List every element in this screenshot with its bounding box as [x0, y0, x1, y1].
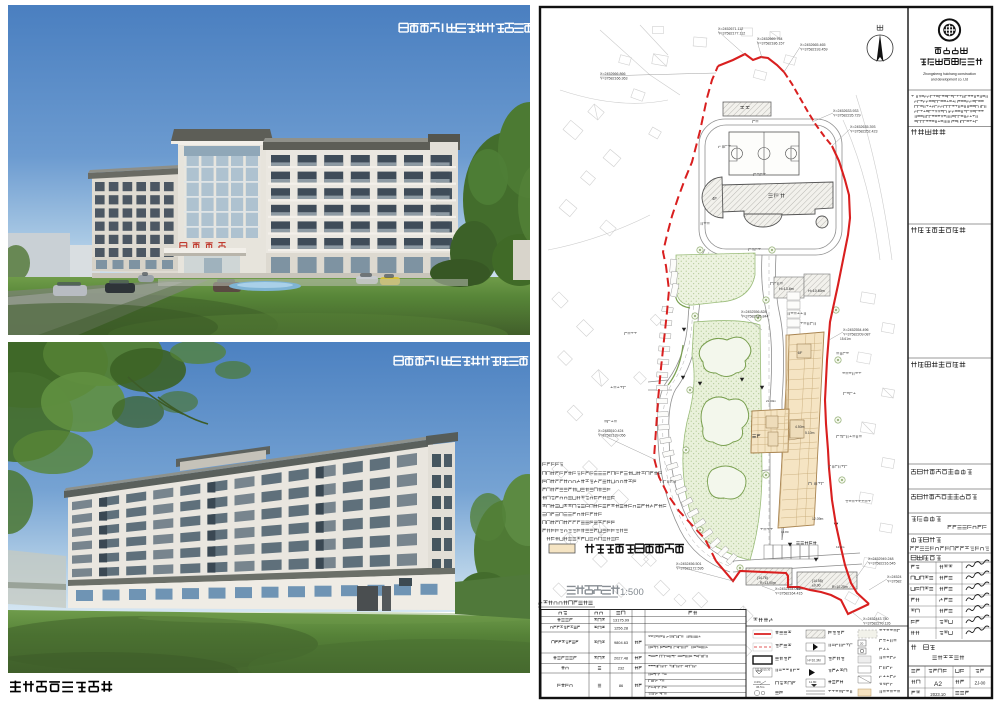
svg-text:X=2452665.465: X=2452665.465: [800, 43, 825, 47]
svg-text:X=2452443.750: X=2452443.750: [863, 617, 888, 621]
svg-text:H=10.60m: H=10.60m: [808, 289, 825, 293]
svg-text:X=2452554.496: X=2452554.496: [843, 328, 868, 332]
svg-text:Y=37582193.459: Y=37582193.459: [800, 48, 827, 52]
svg-text:13.80: 13.80: [781, 530, 789, 534]
svg-text:12.0m: 12.0m: [836, 545, 845, 549]
svg-text:X=2452635.393: X=2452635.393: [850, 125, 875, 129]
svg-text:and development co. Ltd: and development co. Ltd: [931, 78, 968, 82]
svg-text:15.61m: 15.61m: [840, 337, 851, 341]
svg-text:R=13.00m: R=13.00m: [760, 581, 776, 585]
svg-text:H=10.3M: H=10.3M: [808, 659, 821, 663]
svg-text:A2: A2: [934, 681, 942, 688]
svg-text:2027.48: 2027.48: [614, 656, 628, 661]
svg-text:6F: 6F: [798, 350, 803, 355]
svg-text:(14.55): (14.55): [812, 579, 823, 583]
svg-text:Y=37582166.363: Y=37582166.363: [600, 77, 627, 81]
svg-text:X=2452671.112: X=2452671.112: [718, 27, 743, 31]
svg-text:1256.28: 1256.28: [614, 625, 628, 630]
svg-text:Y=37582270.126: Y=37582270.126: [863, 622, 890, 626]
svg-text:X=2452510.424: X=2452510.424: [598, 429, 623, 433]
svg-text:Y=37582216.545: Y=37582216.545: [868, 562, 895, 566]
svg-text:13175.99: 13175.99: [613, 618, 629, 623]
svg-text:Y=37582186.157: Y=37582186.157: [757, 42, 784, 46]
svg-text:ZJ-00: ZJ-00: [975, 681, 986, 686]
svg-text:±0.00: ±0.00: [812, 584, 821, 588]
svg-text:5.10m: 5.10m: [805, 431, 815, 435]
svg-text:X=24524: X=24524: [887, 575, 902, 579]
svg-text:(14.76): (14.76): [757, 576, 768, 580]
svg-text:86: 86: [619, 683, 623, 688]
svg-text:Y=37582139.056: Y=37582139.056: [598, 434, 625, 438]
svg-text:11.80: 11.80: [809, 680, 817, 684]
svg-text:Y=37582185.844: Y=37582185.844: [741, 315, 768, 319]
svg-text:X=2452456.501: X=2452456.501: [676, 562, 701, 566]
svg-text:X=2452949.248: X=2452949.248: [868, 557, 893, 561]
svg-text:X=2452556.828: X=2452556.828: [741, 310, 766, 314]
svg-text:20: 20: [860, 642, 864, 646]
svg-text:232: 232: [618, 666, 625, 671]
svg-text:X=2452454.015: X=2452454.015: [775, 587, 800, 591]
svg-text:9804.63: 9804.63: [614, 640, 628, 645]
svg-text:Y=37582: Y=37582: [887, 580, 902, 584]
svg-text:21.30m: 21.30m: [766, 399, 777, 403]
svg-text:2023.10: 2023.10: [930, 692, 946, 697]
svg-text:1:500: 1:500: [620, 587, 644, 598]
svg-text:Y=37582252.423: Y=37582252.423: [850, 130, 877, 134]
svg-text:R=10.25m: R=10.25m: [832, 585, 848, 589]
svg-text:151.00/15.30: 151.00/15.30: [755, 668, 771, 672]
svg-text:Y=37582177.112: Y=37582177.112: [718, 32, 745, 36]
svg-text:Y=37582164.415: Y=37582164.415: [775, 592, 802, 596]
svg-text:12.09m: 12.09m: [812, 517, 823, 521]
svg-text:i=4%: i=4%: [754, 680, 761, 684]
svg-text:4.50m: 4.50m: [795, 425, 805, 429]
svg-text:X=2452633.933: X=2452633.933: [833, 109, 858, 113]
svg-text:Y=37582235.729: Y=37582235.729: [833, 114, 860, 118]
svg-text:36.5m: 36.5m: [756, 685, 765, 689]
svg-text:Y=37582209.087: Y=37582209.087: [843, 333, 870, 337]
svg-text:Zhongsheng huichang constructi: Zhongsheng huichang construction: [923, 72, 976, 76]
svg-text:H=13.8m: H=13.8m: [779, 287, 794, 291]
svg-text:X=2452669.764: X=2452669.764: [757, 37, 782, 41]
svg-text:4F: 4F: [712, 196, 717, 201]
